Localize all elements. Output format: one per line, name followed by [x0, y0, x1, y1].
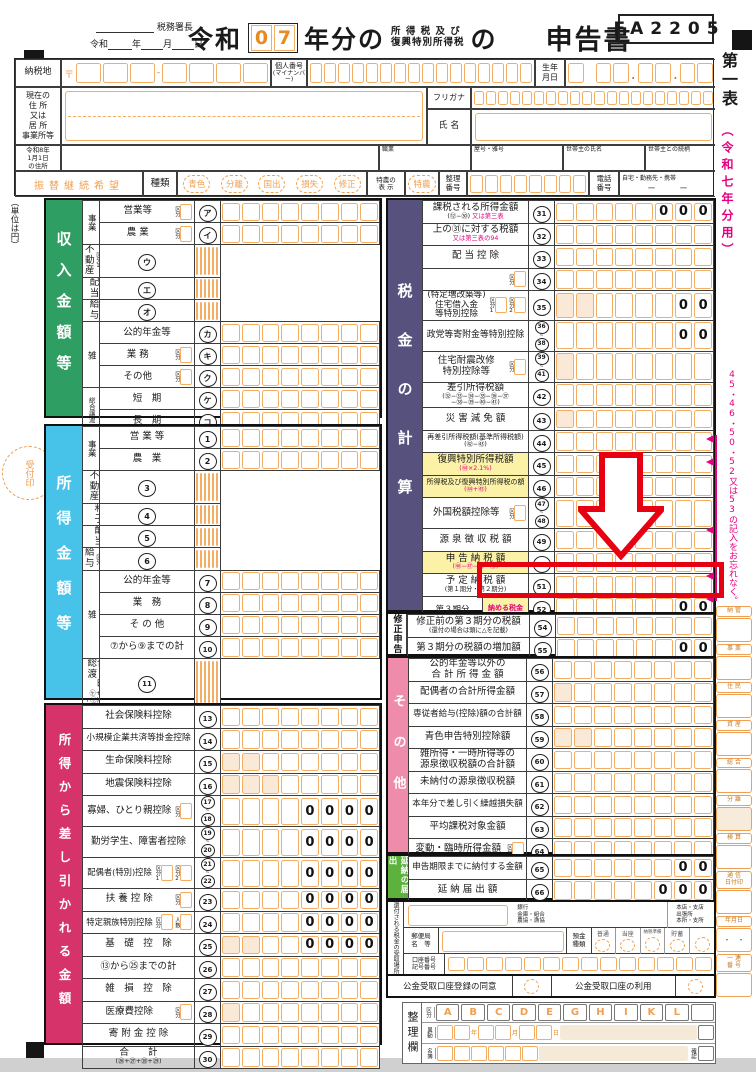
amount-cell[interactable]	[634, 818, 652, 837]
amount-cell[interactable]	[554, 881, 572, 900]
amount-cell[interactable]	[222, 572, 240, 590]
amount-cell[interactable]	[694, 661, 712, 680]
kubun-box[interactable]	[180, 865, 192, 881]
amount-cell[interactable]	[301, 324, 319, 342]
kubun-box[interactable]	[180, 369, 192, 385]
amount-cell[interactable]	[554, 751, 572, 770]
digit-box[interactable]	[570, 91, 580, 105]
amount-cell[interactable]	[242, 981, 260, 1000]
digit-box[interactable]	[380, 63, 392, 82]
amount-cell[interactable]	[301, 775, 319, 794]
amount-cell[interactable]	[262, 390, 280, 408]
amount-cell[interactable]: 0	[675, 322, 693, 349]
amount-cell[interactable]	[360, 225, 378, 243]
amount-cell[interactable]	[262, 572, 280, 590]
amount-cell[interactable]	[216, 505, 218, 523]
amount-cell[interactable]	[634, 661, 652, 680]
amount-cell[interactable]	[281, 958, 299, 977]
amount-cell[interactable]	[321, 572, 339, 590]
amount-cell[interactable]: 0	[301, 913, 319, 932]
amount-cell[interactable]	[321, 638, 339, 657]
amount-cell[interactable]: 0	[694, 639, 712, 658]
amount-cell[interactable]: 0	[341, 860, 359, 887]
amount-cell[interactable]: 0	[341, 913, 359, 932]
amount-cell[interactable]	[634, 728, 652, 747]
amount-cell[interactable]	[635, 410, 653, 429]
amount-cell[interactable]	[360, 958, 378, 977]
amount-cell[interactable]	[262, 225, 280, 243]
amount-cell[interactable]	[694, 248, 712, 267]
amount-cell[interactable]	[301, 429, 319, 447]
kubun-box[interactable]	[180, 914, 192, 930]
amount-cell[interactable]	[222, 368, 240, 386]
amount-cell[interactable]	[360, 346, 378, 364]
amount-cell[interactable]	[360, 616, 378, 634]
amount-cell[interactable]	[360, 1003, 378, 1022]
digit-box[interactable]	[514, 175, 527, 193]
margin-stamp-box[interactable]	[716, 807, 752, 831]
amount-cell[interactable]	[321, 390, 339, 408]
amount-cell[interactable]	[242, 451, 260, 469]
amount-cell[interactable]	[554, 773, 572, 792]
amount-cell[interactable]	[574, 818, 592, 837]
amount-cell[interactable]	[360, 638, 378, 657]
title-year-box[interactable]: 07	[248, 23, 298, 53]
amount-cell[interactable]	[281, 451, 299, 469]
amount-cell[interactable]	[341, 368, 359, 386]
amount-cell[interactable]	[242, 891, 260, 910]
amount-cell[interactable]	[694, 270, 712, 289]
amount-cell[interactable]	[655, 322, 673, 349]
amount-cell[interactable]	[208, 302, 210, 320]
amount-cell[interactable]	[635, 353, 653, 380]
amount-cell[interactable]	[220, 279, 221, 297]
amount-cell[interactable]	[200, 661, 202, 704]
digit-box[interactable]	[534, 91, 544, 105]
amount-cell[interactable]	[674, 706, 692, 725]
amount-cell[interactable]	[262, 860, 280, 887]
amount-cell[interactable]	[675, 353, 693, 380]
amount-cell[interactable]	[556, 293, 574, 319]
amount-cell[interactable]	[574, 706, 592, 725]
amount-cell[interactable]	[556, 500, 574, 527]
amount-cell[interactable]: 0	[321, 913, 339, 932]
deposit-type-mark[interactable]	[645, 937, 660, 952]
amount-cell[interactable]	[694, 796, 712, 815]
amount-cell[interactable]: 0	[341, 891, 359, 910]
deposit-type-mark[interactable]	[695, 937, 710, 952]
amount-cell[interactable]	[614, 859, 632, 878]
amount-cell[interactable]	[222, 936, 240, 955]
digit-box[interactable]	[338, 63, 350, 82]
amount-cell[interactable]	[242, 390, 260, 408]
amount-cell[interactable]	[654, 706, 672, 725]
amount-cell[interactable]	[222, 798, 240, 825]
digit-box[interactable]	[638, 957, 655, 971]
amount-cell[interactable]	[281, 981, 299, 1000]
amount-cell[interactable]	[242, 324, 260, 342]
amount-cell[interactable]	[694, 617, 712, 636]
amount-cell[interactable]	[694, 384, 712, 405]
amount-cell[interactable]: 0	[341, 829, 359, 856]
digit-box[interactable]	[506, 63, 518, 82]
digit-box[interactable]	[529, 175, 542, 193]
amount-cell[interactable]	[616, 639, 634, 658]
digit-box[interactable]	[546, 91, 556, 105]
amount-cell[interactable]	[262, 203, 280, 221]
amount-cell[interactable]	[196, 302, 198, 320]
amount-cell[interactable]	[554, 859, 572, 878]
amount-cell[interactable]	[556, 322, 574, 349]
phone-cell[interactable]: 自宅・勤務先・携帯 ー ー	[619, 171, 715, 197]
digit-box[interactable]	[324, 63, 336, 82]
digit-box[interactable]	[657, 957, 674, 971]
kubun-box[interactable]	[514, 271, 526, 287]
amount-cell[interactable]	[615, 248, 633, 267]
amount-cell[interactable]	[341, 616, 359, 634]
amount-cell[interactable]	[694, 353, 712, 380]
office-letter-K[interactable]: K	[640, 1004, 663, 1021]
name-input-area[interactable]	[475, 113, 712, 141]
amount-cell[interactable]	[556, 384, 574, 405]
amount-cell[interactable]	[262, 368, 280, 386]
amount-cell[interactable]	[242, 1048, 260, 1067]
amount-cell[interactable]	[242, 368, 260, 386]
digit-box[interactable]	[667, 91, 677, 105]
tax-office-underline[interactable]	[96, 22, 154, 33]
amount-cell[interactable]: 0	[360, 798, 378, 825]
digit-box[interactable]	[485, 175, 498, 193]
amount-cell[interactable]	[222, 829, 240, 856]
amount-cell[interactable]: 0	[675, 639, 693, 658]
amount-cell[interactable]	[242, 913, 260, 932]
amount-cell[interactable]	[636, 639, 654, 658]
digit-box[interactable]	[76, 63, 101, 82]
amount-cell[interactable]	[635, 322, 653, 349]
amount-cell[interactable]	[574, 683, 592, 702]
office-letter-D[interactable]: D	[512, 1004, 535, 1021]
amount-cell[interactable]	[200, 247, 202, 276]
amount-cell[interactable]	[360, 708, 378, 727]
margin-stamp-box[interactable]	[716, 845, 752, 869]
amount-cell[interactable]	[556, 353, 574, 380]
amount-cell[interactable]	[674, 818, 692, 837]
amount-cell[interactable]	[216, 473, 218, 502]
digit-box[interactable]	[631, 91, 641, 105]
amount-cell[interactable]	[596, 322, 614, 349]
amount-cell[interactable]	[220, 661, 221, 704]
amount-cell[interactable]	[576, 322, 594, 349]
amount-cell[interactable]: 0	[674, 859, 692, 878]
kubun-box[interactable]	[180, 803, 192, 819]
amount-cell[interactable]	[222, 638, 240, 657]
amount-cell[interactable]	[341, 1026, 359, 1045]
amount-cell[interactable]: 0	[694, 322, 712, 349]
amount-cell[interactable]	[360, 594, 378, 612]
amount-cell[interactable]: 0	[301, 798, 319, 825]
amount-cell[interactable]	[594, 773, 612, 792]
amount-cell[interactable]	[576, 248, 594, 267]
digit-box[interactable]	[697, 63, 713, 82]
era-box[interactable]	[568, 63, 584, 82]
amount-cell[interactable]	[222, 203, 240, 221]
digit-box[interactable]	[582, 91, 592, 105]
amount-cell[interactable]: 0	[321, 860, 339, 887]
amount-cell[interactable]	[635, 248, 653, 267]
amount-cell[interactable]	[321, 775, 339, 794]
amount-cell[interactable]	[220, 247, 221, 276]
office-letter-G[interactable]: G	[563, 1004, 586, 1021]
amount-cell[interactable]	[634, 706, 652, 725]
amount-cell[interactable]	[262, 981, 280, 1000]
amount-cell[interactable]	[242, 225, 260, 243]
amount-cell[interactable]	[242, 203, 260, 221]
margin-stamp-box[interactable]	[716, 656, 752, 680]
amount-cell[interactable]	[635, 225, 653, 244]
amount-cell[interactable]	[574, 796, 592, 815]
amount-cell[interactable]	[675, 500, 693, 527]
amount-cell[interactable]	[341, 324, 359, 342]
amount-cell[interactable]	[262, 913, 280, 932]
digit-box[interactable]	[655, 91, 665, 105]
amount-cell[interactable]	[281, 860, 299, 887]
amount-cell[interactable]	[596, 270, 614, 289]
digit-box[interactable]	[436, 63, 448, 82]
amount-cell[interactable]	[675, 531, 693, 550]
amount-cell[interactable]	[321, 429, 339, 447]
amount-cell[interactable]	[634, 751, 652, 770]
amount-cell[interactable]	[654, 751, 672, 770]
digit-box[interactable]	[558, 91, 568, 105]
amount-cell[interactable]	[674, 751, 692, 770]
amount-cell[interactable]	[216, 302, 218, 320]
amount-cell[interactable]	[242, 936, 260, 955]
amount-cell[interactable]	[200, 505, 202, 523]
amount-cell[interactable]	[556, 432, 574, 451]
digit-box[interactable]	[680, 63, 696, 82]
amount-cell[interactable]	[212, 473, 214, 502]
amount-cell[interactable]	[216, 528, 218, 546]
amount-cell[interactable]	[208, 661, 210, 704]
digit-box[interactable]	[103, 63, 128, 82]
amount-cell[interactable]	[301, 451, 319, 469]
amount-cell[interactable]	[301, 638, 319, 657]
kubun-box[interactable]	[180, 226, 192, 242]
amount-cell[interactable]	[281, 638, 299, 657]
amount-cell[interactable]	[216, 247, 218, 276]
amount-cell[interactable]	[196, 247, 198, 276]
amount-cell[interactable]	[222, 958, 240, 977]
amount-cell[interactable]	[321, 225, 339, 243]
amount-cell[interactable]	[655, 639, 673, 658]
amount-cell[interactable]	[694, 706, 712, 725]
digit-box[interactable]	[524, 957, 541, 971]
amount-cell[interactable]	[614, 881, 632, 900]
amount-cell[interactable]	[674, 661, 692, 680]
amount-cell[interactable]	[262, 829, 280, 856]
amount-cell[interactable]	[615, 384, 633, 405]
amount-cell[interactable]	[577, 639, 595, 658]
amount-cell[interactable]	[694, 683, 712, 702]
amount-cell[interactable]	[196, 473, 198, 502]
amount-cell[interactable]	[301, 225, 319, 243]
amount-cell[interactable]	[200, 279, 202, 297]
amount-cell[interactable]	[594, 661, 612, 680]
kubun-box[interactable]	[514, 505, 526, 521]
amount-cell[interactable]: 0	[694, 859, 712, 878]
amount-cell[interactable]	[596, 432, 614, 451]
amount-cell[interactable]	[360, 730, 378, 749]
amount-cell[interactable]	[635, 384, 653, 405]
amount-cell[interactable]	[204, 473, 206, 502]
amount-cell[interactable]	[594, 881, 612, 900]
margin-stamp-box[interactable]	[716, 732, 752, 756]
amount-cell[interactable]	[694, 500, 712, 527]
public-account-use-mark[interactable]	[675, 976, 714, 996]
amount-cell[interactable]	[655, 270, 673, 289]
date-year-blank[interactable]	[108, 39, 132, 50]
amount-cell[interactable]: 0	[694, 881, 712, 900]
amount-cell[interactable]	[556, 410, 574, 429]
amount-cell[interactable]	[242, 616, 260, 634]
amount-cell[interactable]	[262, 594, 280, 612]
tokuno-oval[interactable]: 特農	[408, 175, 435, 193]
digit-box[interactable]	[352, 63, 364, 82]
deposit-type-mark[interactable]	[620, 939, 635, 952]
amount-cell[interactable]	[301, 368, 319, 386]
amount-cell[interactable]: 0	[675, 293, 693, 319]
digit-box[interactable]	[559, 175, 572, 193]
digit-box[interactable]	[607, 91, 617, 105]
office-letter-L[interactable]: L	[665, 1004, 688, 1021]
amount-cell[interactable]	[281, 594, 299, 612]
amount-cell[interactable]	[196, 279, 198, 297]
postoffice-input[interactable]	[442, 931, 564, 952]
amount-cell[interactable]	[360, 775, 378, 794]
amount-cell[interactable]: 0	[360, 913, 378, 932]
amount-cell[interactable]	[222, 1048, 240, 1067]
amount-cell[interactable]	[216, 550, 218, 568]
amount-cell[interactable]	[222, 324, 240, 342]
amount-cell[interactable]	[204, 247, 206, 276]
amount-cell[interactable]	[655, 293, 673, 319]
amount-cell[interactable]	[576, 432, 594, 451]
amount-cell[interactable]	[341, 594, 359, 612]
amount-cell[interactable]	[281, 891, 299, 910]
amount-cell[interactable]	[222, 390, 240, 408]
amount-cell[interactable]	[655, 248, 673, 267]
amount-cell[interactable]	[262, 708, 280, 727]
amount-cell[interactable]: 0	[654, 881, 672, 900]
digit-box[interactable]	[486, 957, 503, 971]
amount-cell[interactable]	[341, 225, 359, 243]
amount-cell[interactable]	[615, 353, 633, 380]
amount-cell[interactable]	[242, 346, 260, 364]
digit-box[interactable]	[562, 957, 579, 971]
amount-cell[interactable]	[208, 505, 210, 523]
digit-box[interactable]	[408, 63, 420, 82]
digit-box[interactable]	[638, 63, 654, 82]
furikae-cell[interactable]: 振替継続希望	[15, 171, 143, 197]
kubun-box[interactable]	[514, 297, 526, 313]
digit-box[interactable]	[596, 63, 612, 82]
amount-cell[interactable]	[281, 346, 299, 364]
amount-cell[interactable]	[341, 1048, 359, 1067]
digit-box[interactable]	[394, 63, 406, 82]
amount-cell[interactable]	[222, 346, 240, 364]
amount-cell[interactable]	[594, 796, 612, 815]
digit-box[interactable]	[474, 91, 484, 105]
amount-cell[interactable]	[360, 572, 378, 590]
amount-cell[interactable]	[222, 860, 240, 887]
amount-cell[interactable]	[674, 796, 692, 815]
amount-cell[interactable]	[675, 384, 693, 405]
amount-cell[interactable]	[301, 572, 319, 590]
amount-cell[interactable]	[262, 936, 280, 955]
amount-cell[interactable]	[196, 550, 198, 568]
amount-cell[interactable]: 0	[694, 203, 712, 222]
digit-box[interactable]	[189, 63, 214, 82]
amount-cell[interactable]	[262, 616, 280, 634]
amount-cell[interactable]	[675, 248, 693, 267]
amount-cell[interactable]	[635, 203, 653, 222]
digit-box[interactable]	[543, 957, 560, 971]
amount-cell[interactable]	[262, 730, 280, 749]
amount-cell[interactable]	[220, 473, 221, 502]
margin-stamp-box[interactable]	[716, 769, 752, 793]
amount-cell[interactable]	[615, 203, 633, 222]
office-letter-I[interactable]: I	[614, 1004, 637, 1021]
amount-cell[interactable]	[360, 429, 378, 447]
amount-cell[interactable]	[576, 225, 594, 244]
amount-cell[interactable]	[216, 279, 218, 297]
amount-cell[interactable]	[281, 1003, 299, 1022]
office-letter-H[interactable]: H	[589, 1004, 612, 1021]
amount-cell[interactable]	[212, 247, 214, 276]
digit-box[interactable]	[573, 175, 586, 193]
amount-cell[interactable]	[208, 550, 210, 568]
office-letter-C[interactable]: C	[487, 1004, 510, 1021]
amount-cell[interactable]	[594, 728, 612, 747]
amount-cell[interactable]	[222, 753, 240, 772]
amount-cell[interactable]	[281, 429, 299, 447]
amount-cell[interactable]: 0	[360, 891, 378, 910]
digit-box[interactable]	[520, 63, 532, 82]
digit-box[interactable]	[216, 63, 241, 82]
amount-cell[interactable]	[281, 1048, 299, 1067]
address-input-area[interactable]	[65, 91, 423, 141]
amount-cell[interactable]	[341, 390, 359, 408]
margin-stamp-box[interactable]: ・ ・	[716, 928, 752, 952]
amount-cell[interactable]	[615, 225, 633, 244]
digit-box[interactable]	[130, 63, 155, 82]
amount-cell[interactable]	[301, 616, 319, 634]
amount-cell[interactable]	[196, 528, 198, 546]
amount-cell[interactable]	[615, 293, 633, 319]
amount-cell[interactable]	[360, 368, 378, 386]
amount-cell[interactable]: 0	[360, 936, 378, 955]
amount-cell[interactable]: 0	[655, 203, 673, 222]
amount-cell[interactable]	[635, 293, 653, 319]
margin-stamp-box[interactable]	[716, 694, 752, 718]
amount-cell[interactable]	[360, 324, 378, 342]
amount-cell[interactable]	[614, 818, 632, 837]
digit-box[interactable]	[310, 63, 322, 82]
amount-cell[interactable]	[596, 410, 614, 429]
amount-cell[interactable]	[220, 528, 221, 546]
digit-box[interactable]	[505, 957, 522, 971]
return-type-青色[interactable]: 青色	[183, 175, 210, 193]
